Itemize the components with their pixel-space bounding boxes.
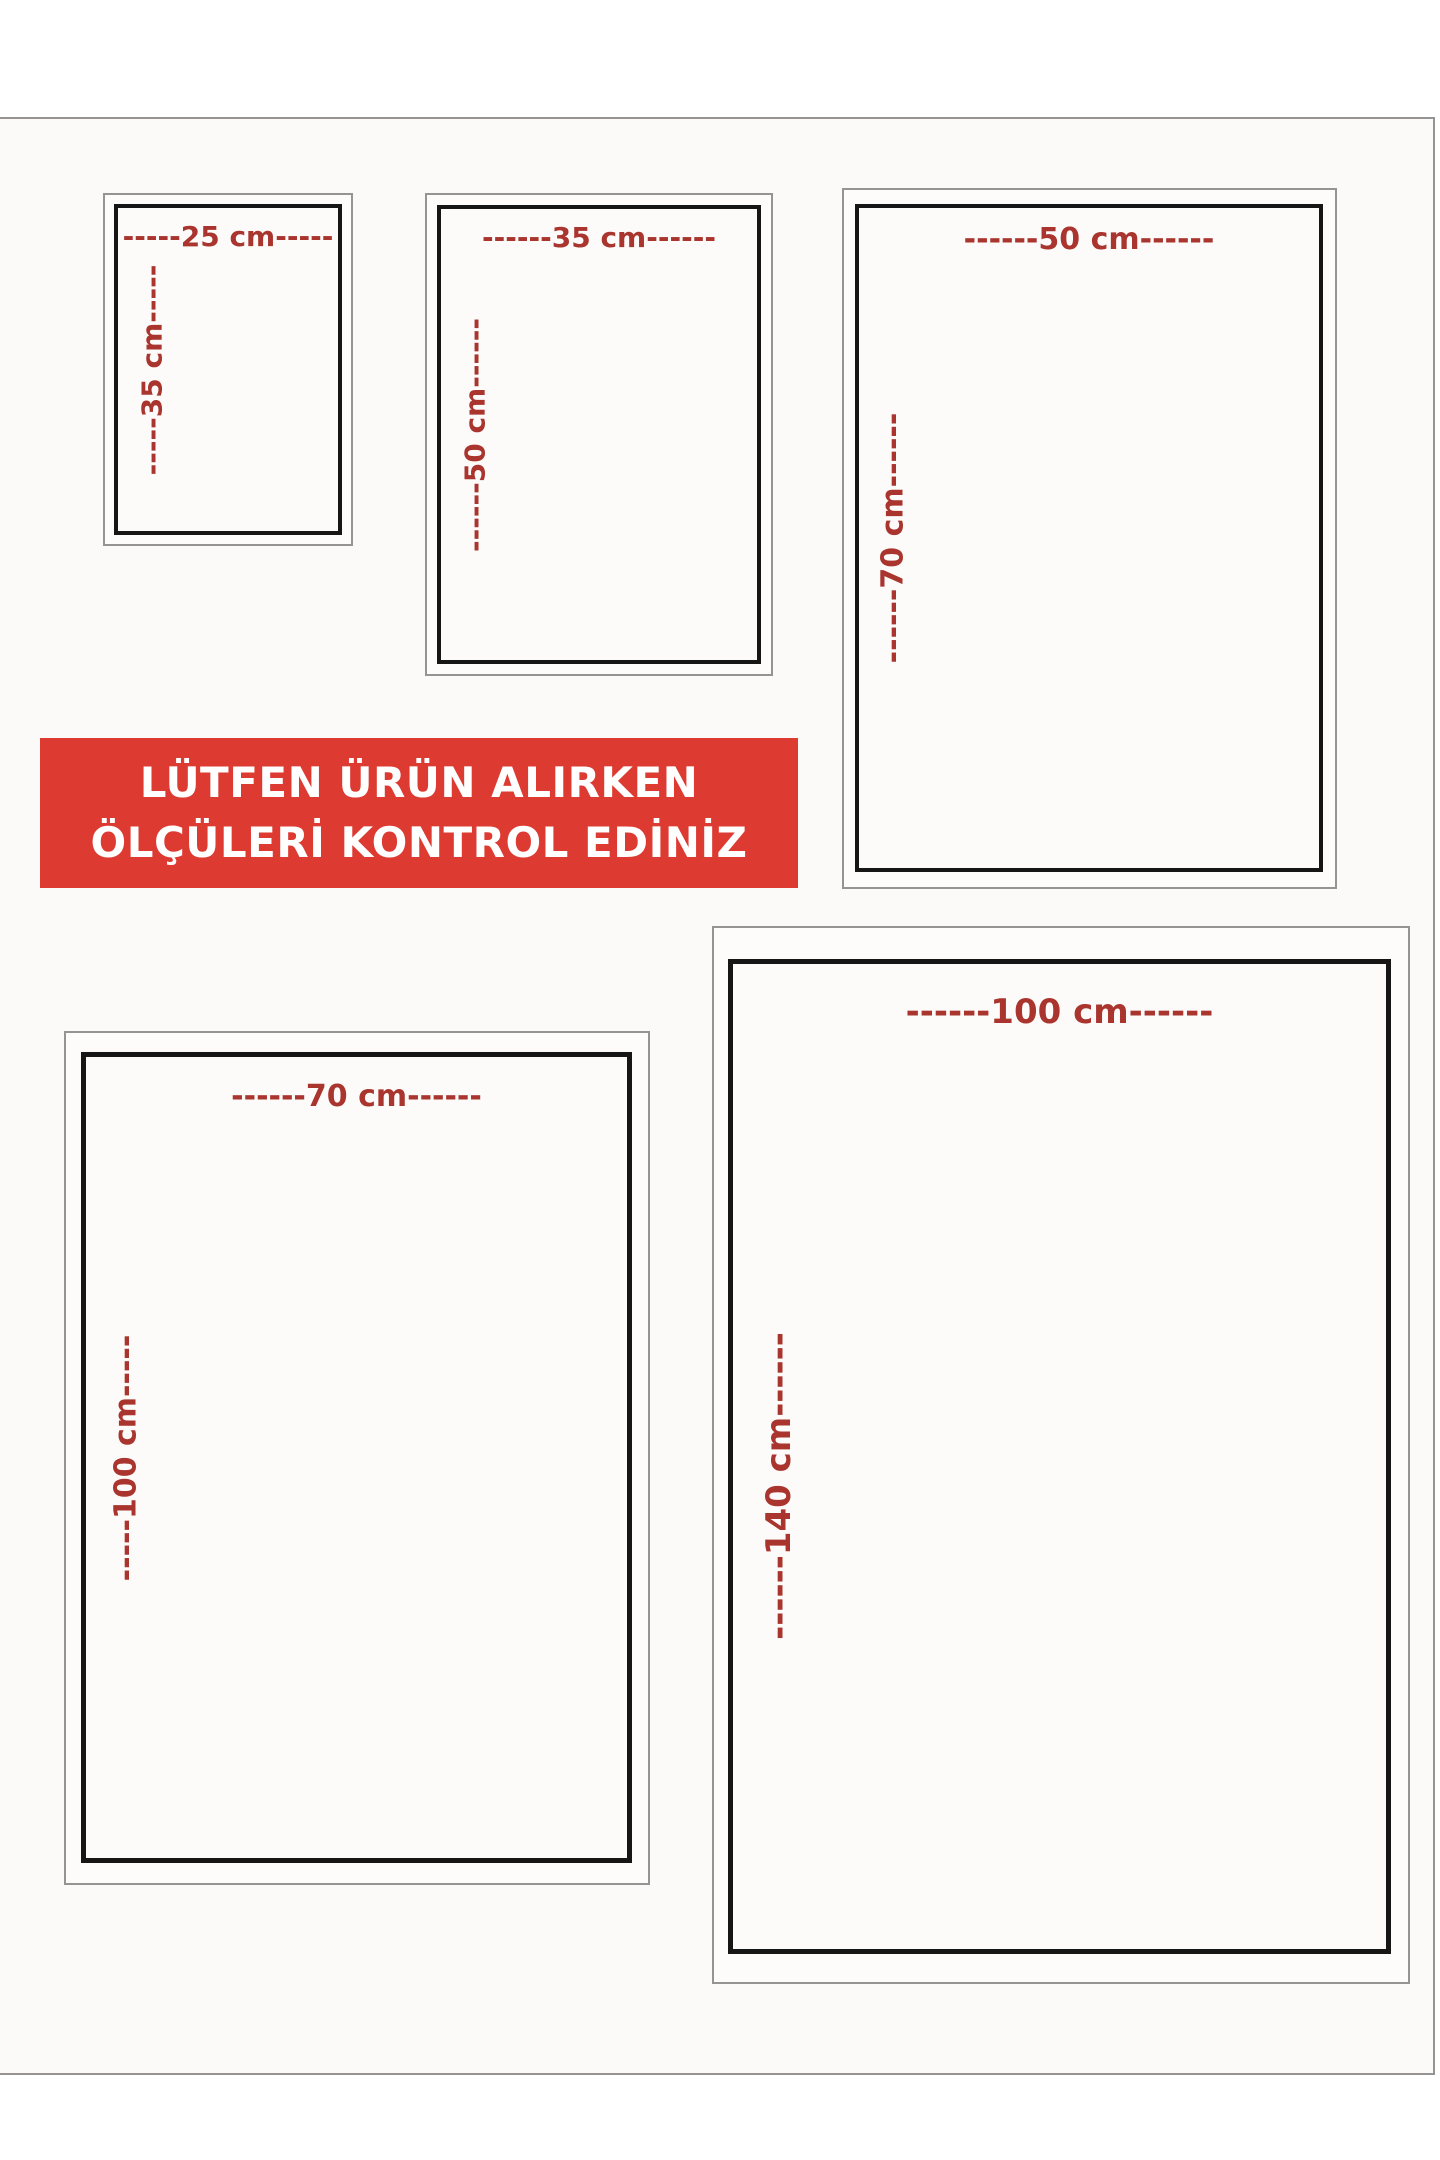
size-box-50x70: ------50 cm------ ------70 cm------ [842, 188, 1337, 889]
size-box-100x140-inner-frame: ------100 cm------ ------140 cm------ [728, 959, 1391, 1954]
width-dimension-label: ------35 cm------ [441, 221, 757, 254]
warning-line-1: LÜTFEN ÜRÜN ALIRKEN [140, 753, 699, 813]
size-box-70x100: ------70 cm------ -----100 cm----- [64, 1031, 650, 1885]
width-dimension-label: ------70 cm------ [86, 1079, 627, 1114]
size-box-100x140: ------100 cm------ ------140 cm------ [712, 926, 1410, 1984]
size-box-35x50: ------35 cm------ ------50 cm------ [425, 193, 773, 676]
height-dimension-label: -----35 cm----- [136, 264, 169, 475]
warning-line-2: ÖLÇÜLERİ KONTROL EDİNİZ [91, 813, 748, 873]
size-box-25x35: -----25 cm----- -----35 cm----- [103, 193, 353, 546]
size-box-50x70-inner-frame: ------50 cm------ ------70 cm------ [855, 204, 1323, 872]
measurement-warning-banner: LÜTFEN ÜRÜN ALIRKEN ÖLÇÜLERİ KONTROL EDİ… [40, 738, 798, 888]
width-dimension-label: ------100 cm------ [733, 992, 1386, 1032]
size-chart-canvas: { "colors": { "page_bg": "#fbfaf9", "fra… [0, 0, 1440, 2160]
size-box-25x35-inner-frame: -----25 cm----- -----35 cm----- [114, 204, 342, 535]
size-box-70x100-inner-frame: ------70 cm------ -----100 cm----- [81, 1052, 632, 1863]
size-box-35x50-inner-frame: ------35 cm------ ------50 cm------ [437, 205, 761, 664]
width-dimension-label: -----25 cm----- [118, 220, 338, 253]
height-dimension-label: ------140 cm------ [759, 1332, 799, 1640]
width-dimension-label: ------50 cm------ [859, 222, 1319, 257]
height-dimension-label: ------70 cm------ [876, 413, 911, 664]
height-dimension-label: ------50 cm------ [459, 318, 492, 552]
height-dimension-label: -----100 cm----- [109, 1334, 144, 1581]
